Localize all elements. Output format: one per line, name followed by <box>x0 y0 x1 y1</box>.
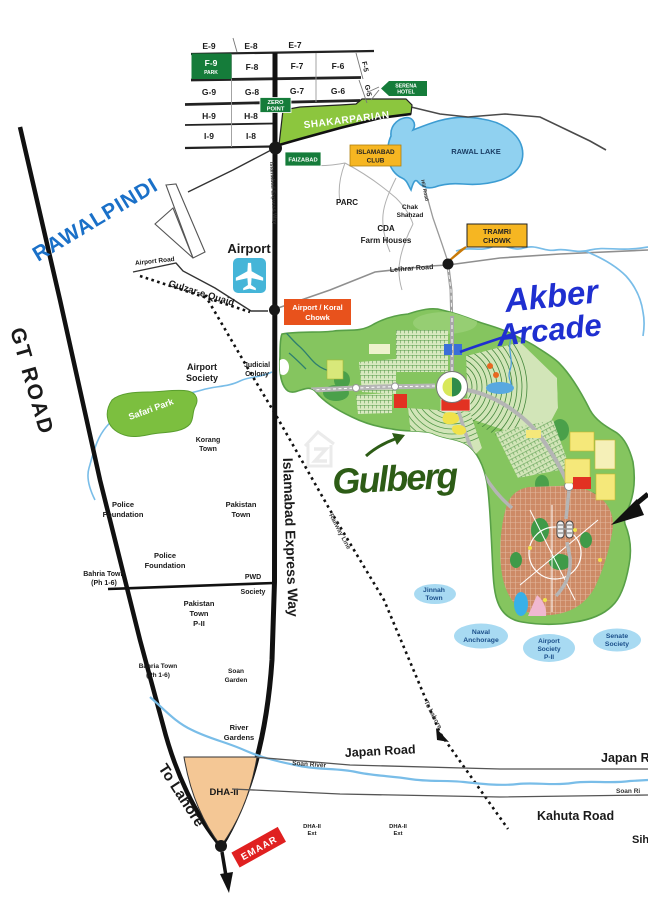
svg-text:Airport / Koral: Airport / Koral <box>292 303 342 312</box>
svg-text:River: River <box>230 723 249 732</box>
svg-text:TRAMRI: TRAMRI <box>483 227 511 236</box>
svg-text:Anchorage: Anchorage <box>463 637 499 644</box>
svg-text:CLUB: CLUB <box>367 158 385 165</box>
svg-text:Chak: Chak <box>402 204 418 211</box>
svg-text:E-7: E-7 <box>288 40 302 50</box>
svg-text:G-8: G-8 <box>245 87 259 97</box>
svg-text:F-6: F-6 <box>332 61 345 71</box>
svg-text:P-II: P-II <box>193 619 205 628</box>
svg-text:Gulberg: Gulberg <box>331 455 459 503</box>
svg-text:Farm Houses: Farm Houses <box>361 236 412 245</box>
svg-text:ISLAMABAD: ISLAMABAD <box>356 149 395 156</box>
svg-text:Society: Society <box>605 641 629 648</box>
svg-text:HOTEL: HOTEL <box>397 90 415 96</box>
svg-text:(Ph 1-6): (Ph 1-6) <box>91 580 117 587</box>
svg-text:Soan Ri: Soan Ri <box>616 788 640 795</box>
svg-text:F-9: F-9 <box>205 58 218 68</box>
svg-text:Town: Town <box>425 595 442 602</box>
svg-text:Japan Ro: Japan Ro <box>601 751 648 765</box>
svg-text:Bahria Town: Bahria Town <box>139 663 178 670</box>
svg-text:Senate: Senate <box>606 633 629 640</box>
svg-text:Naval: Naval <box>472 629 490 636</box>
svg-text:Pakistan: Pakistan <box>226 500 257 509</box>
svg-text:F-8: F-8 <box>246 62 259 72</box>
svg-text:Bahria Town: Bahria Town <box>83 571 124 578</box>
svg-text:Airport: Airport <box>187 362 217 372</box>
svg-text:(Ph 1-6): (Ph 1-6) <box>146 672 170 679</box>
svg-text:Society: Society <box>241 589 266 596</box>
svg-text:P-II: P-II <box>544 654 554 661</box>
svg-text:Chowk: Chowk <box>305 313 330 322</box>
svg-text:Foundation: Foundation <box>145 561 186 570</box>
svg-text:Garden: Garden <box>225 677 248 684</box>
svg-text:Sihala: Sihala <box>632 834 648 846</box>
svg-text:CDA: CDA <box>377 224 395 233</box>
svg-text:G-6: G-6 <box>331 86 345 96</box>
svg-text:H-8: H-8 <box>244 111 258 121</box>
svg-text:G-9: G-9 <box>202 87 216 97</box>
svg-text:Society: Society <box>186 373 218 383</box>
svg-text:PARC: PARC <box>336 198 358 207</box>
svg-text:F-7: F-7 <box>291 61 304 71</box>
svg-text:Judicial: Judicial <box>244 362 270 369</box>
svg-text:Society: Society <box>537 646 561 653</box>
svg-text:E-8: E-8 <box>244 41 258 51</box>
svg-text:Airport: Airport <box>227 241 271 256</box>
svg-text:ZERO: ZERO <box>267 100 284 106</box>
svg-text:POINT: POINT <box>267 107 285 113</box>
svg-text:Police: Police <box>112 500 134 509</box>
svg-text:Town: Town <box>189 609 208 618</box>
svg-text:H-9: H-9 <box>202 111 216 121</box>
svg-text:Airport: Airport <box>538 638 561 645</box>
svg-text:Korang: Korang <box>196 437 221 444</box>
svg-text:E-9: E-9 <box>202 41 216 51</box>
svg-text:Colony: Colony <box>245 371 269 378</box>
svg-text:Town: Town <box>199 446 217 453</box>
svg-text:Ext: Ext <box>393 831 402 837</box>
svg-text:Town: Town <box>231 510 250 519</box>
svg-text:Police: Police <box>154 551 176 560</box>
svg-text:Soan: Soan <box>228 668 244 675</box>
svg-text:Jinnah: Jinnah <box>423 587 445 594</box>
svg-text:Ext: Ext <box>307 831 316 837</box>
svg-text:I-9: I-9 <box>204 131 214 141</box>
svg-text:DHA-II: DHA-II <box>303 824 321 830</box>
svg-text:Kahuta Road: Kahuta Road <box>537 809 614 823</box>
svg-text:PWD: PWD <box>245 574 261 581</box>
svg-text:Shahzad: Shahzad <box>397 212 424 219</box>
svg-text:RAWAL LAKE: RAWAL LAKE <box>451 147 500 156</box>
svg-text:Pakistan: Pakistan <box>184 599 215 608</box>
svg-text:G-7: G-7 <box>290 86 304 96</box>
svg-text:Foundation: Foundation <box>103 510 144 519</box>
svg-text:PARK: PARK <box>204 70 218 76</box>
svg-text:DHA-II: DHA-II <box>389 824 407 830</box>
svg-text:I-8: I-8 <box>246 131 256 141</box>
svg-text:Gardens: Gardens <box>224 733 254 742</box>
svg-text:FAIZABAD: FAIZABAD <box>288 158 317 164</box>
svg-text:CHOWK: CHOWK <box>483 236 512 245</box>
